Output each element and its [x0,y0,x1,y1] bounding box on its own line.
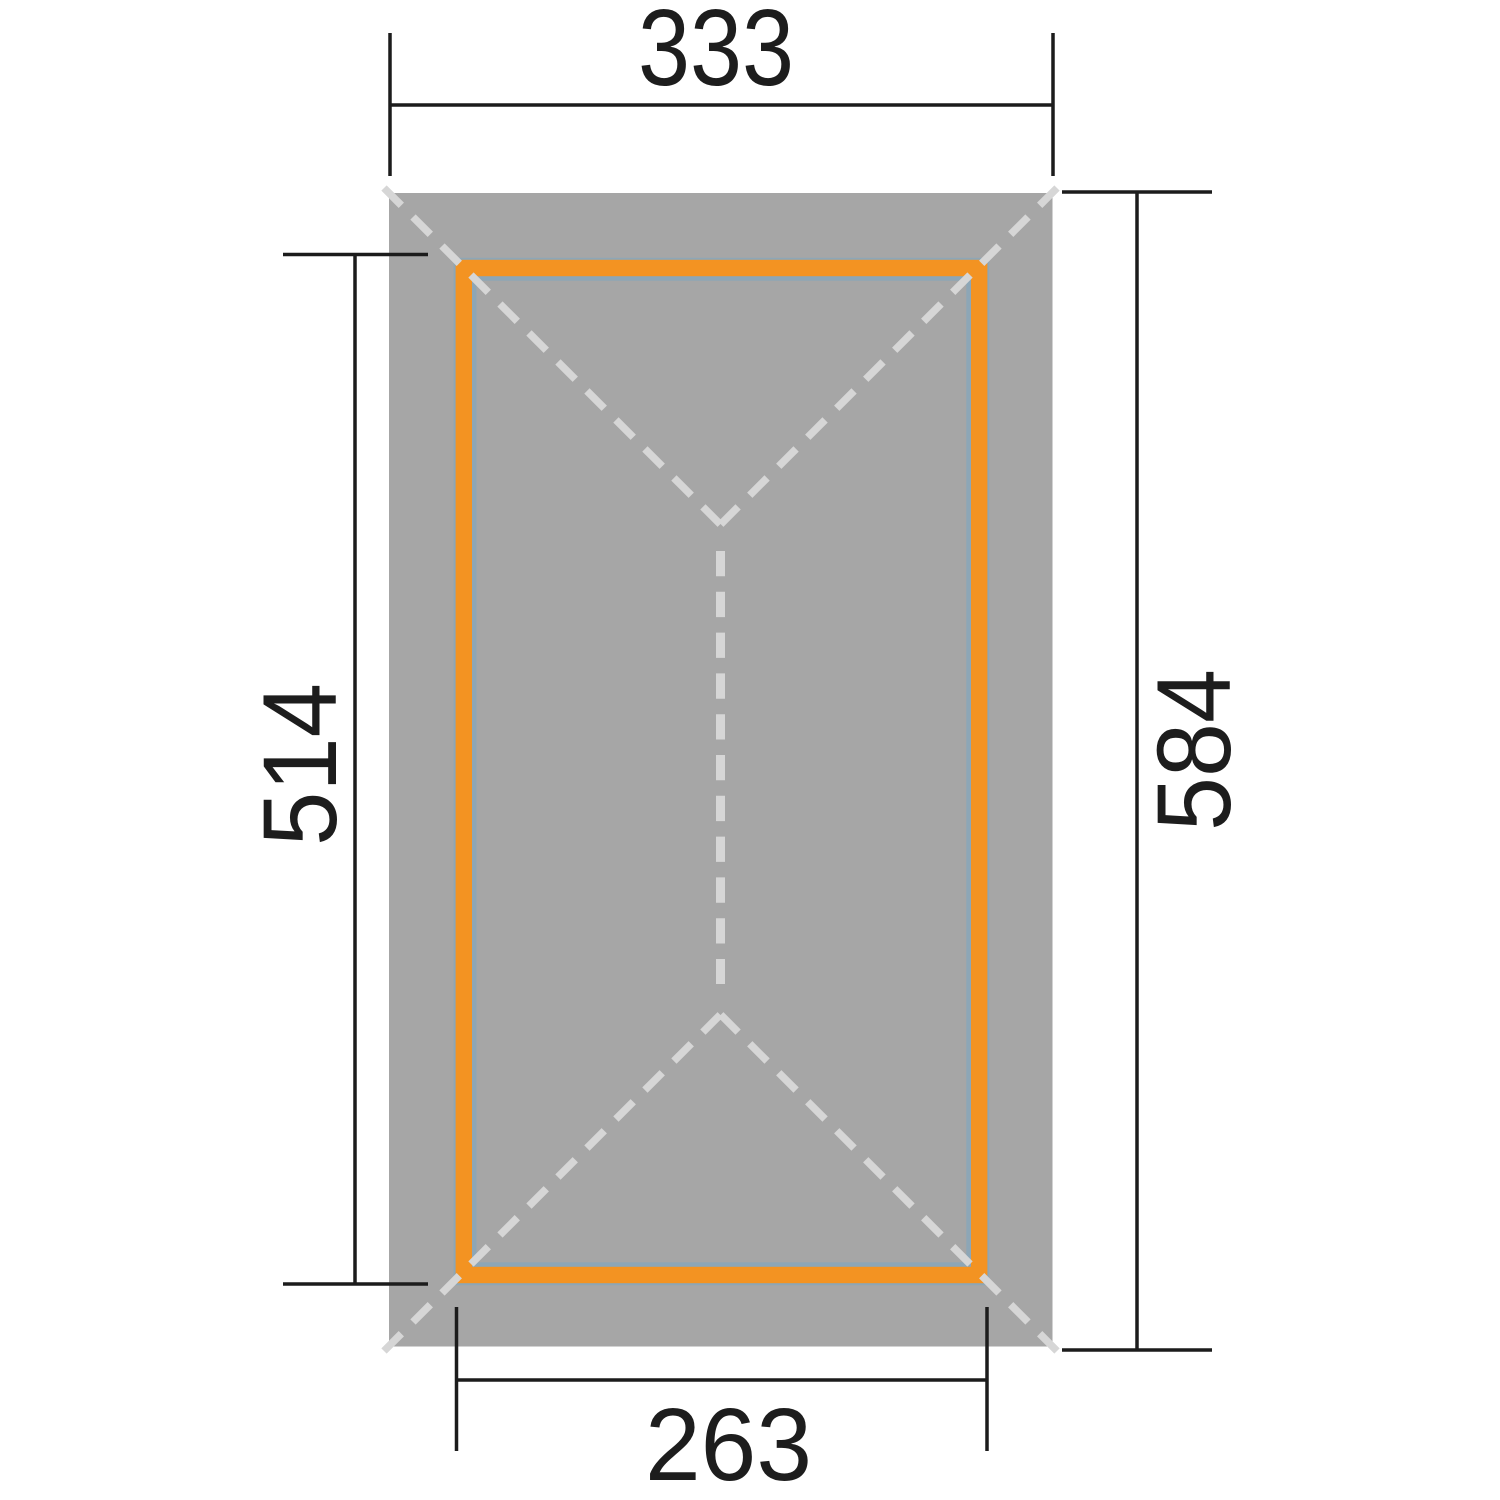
svg-text:263: 263 [645,1387,812,1500]
svg-text:333: 333 [638,0,794,109]
svg-text:514: 514 [242,683,359,846]
svg-text:584: 584 [1136,669,1253,831]
